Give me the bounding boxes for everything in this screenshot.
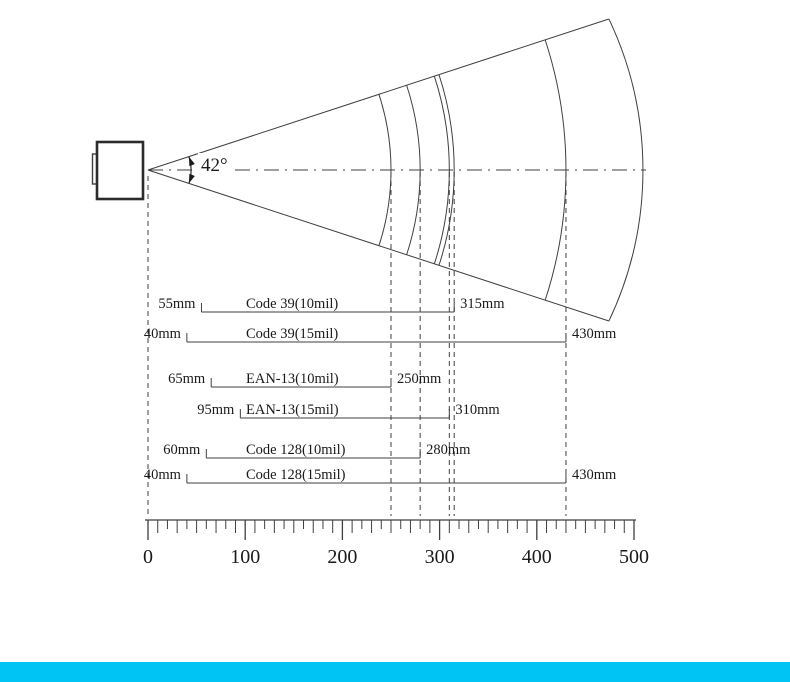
beam-angle-label: 42°	[201, 155, 228, 176]
near-distance-label: 65mm	[168, 371, 206, 387]
range-bar-4: 95mmEAN-13(15mil)310mm	[197, 402, 500, 418]
ruler-tick-label-400: 400	[522, 546, 552, 568]
near-distance-label: 40mm	[144, 467, 182, 483]
symbology-label: Code 128(15mil)	[246, 467, 346, 483]
dof-diagram-canvas: 42° 55mmCode 39(10mil)315mm40mmCode 39(1…	[0, 0, 790, 682]
symbology-label: Code 39(15mil)	[246, 326, 338, 342]
angle-arrow-down-icon	[189, 174, 195, 184]
ruler-tick-label-100: 100	[230, 546, 260, 568]
scanner-body	[97, 142, 143, 199]
cone-lower-edge	[148, 170, 609, 321]
symbology-label: EAN-13(15mil)	[246, 402, 339, 418]
near-distance-label: 60mm	[163, 442, 201, 458]
dof-diagram-page: 42° 55mmCode 39(10mil)315mm40mmCode 39(1…	[0, 0, 790, 682]
beam-angle-annotation: 42°	[189, 153, 234, 183]
range-bar-5: 60mmCode 128(10mil)280mm	[163, 442, 471, 458]
far-distance-label: 315mm	[460, 296, 505, 312]
range-bar-2: 40mmCode 39(15mil)430mm	[144, 326, 617, 342]
footer-accent-bar	[0, 662, 790, 682]
far-distance-label: 280mm	[426, 442, 471, 458]
ruler-tick-label-300: 300	[425, 546, 455, 568]
ruler-tick-label-500: 500	[619, 546, 649, 568]
range-bars: 55mmCode 39(10mil)315mm40mmCode 39(15mil…	[144, 296, 617, 483]
symbology-label: EAN-13(10mil)	[246, 371, 339, 387]
far-distance-label: 310mm	[455, 402, 500, 418]
symbology-label: Code 128(10mil)	[246, 442, 346, 458]
projection-guides	[148, 172, 566, 516]
near-distance-label: 55mm	[158, 296, 196, 312]
range-bar-3: 65mmEAN-13(10mil)250mm	[168, 371, 442, 387]
ruler-tick-label-0: 0	[143, 546, 153, 568]
scanner-device	[93, 142, 144, 199]
far-distance-label: 430mm	[572, 326, 617, 342]
near-distance-label: 95mm	[197, 402, 235, 418]
range-bar-1: 55mmCode 39(10mil)315mm	[158, 296, 505, 312]
angle-arrow-up-icon	[189, 157, 195, 167]
symbology-label: Code 39(10mil)	[246, 296, 338, 312]
ruler-tick-label-200: 200	[327, 546, 357, 568]
cone-upper-edge	[148, 19, 609, 170]
distance-ruler: 0100200300400500	[143, 520, 649, 568]
near-distance-label: 40mm	[144, 326, 182, 342]
far-distance-label: 250mm	[397, 371, 442, 387]
range-bar-6: 40mmCode 128(15mil)430mm	[144, 467, 617, 483]
far-distance-label: 430mm	[572, 467, 617, 483]
